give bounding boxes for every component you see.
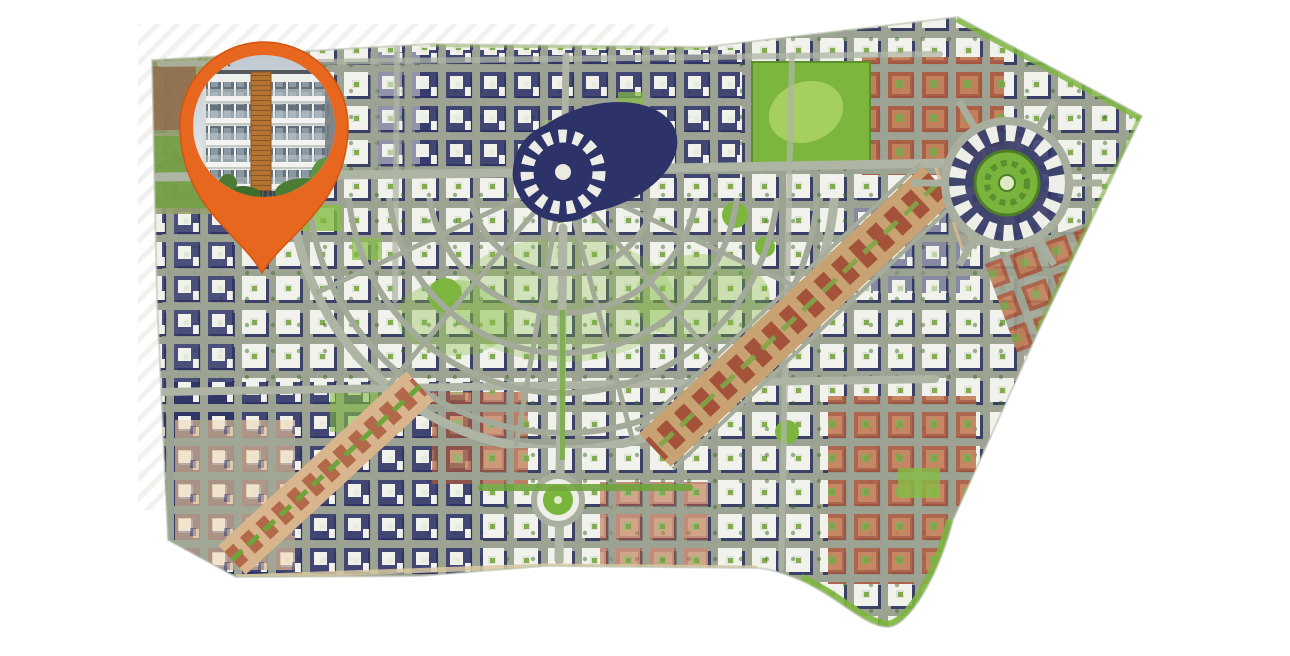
figure-stage [0,0,1290,656]
pocket-circle-plaza [534,476,582,524]
masterplan-map-figure [0,0,1290,656]
wood-accent [251,72,271,194]
